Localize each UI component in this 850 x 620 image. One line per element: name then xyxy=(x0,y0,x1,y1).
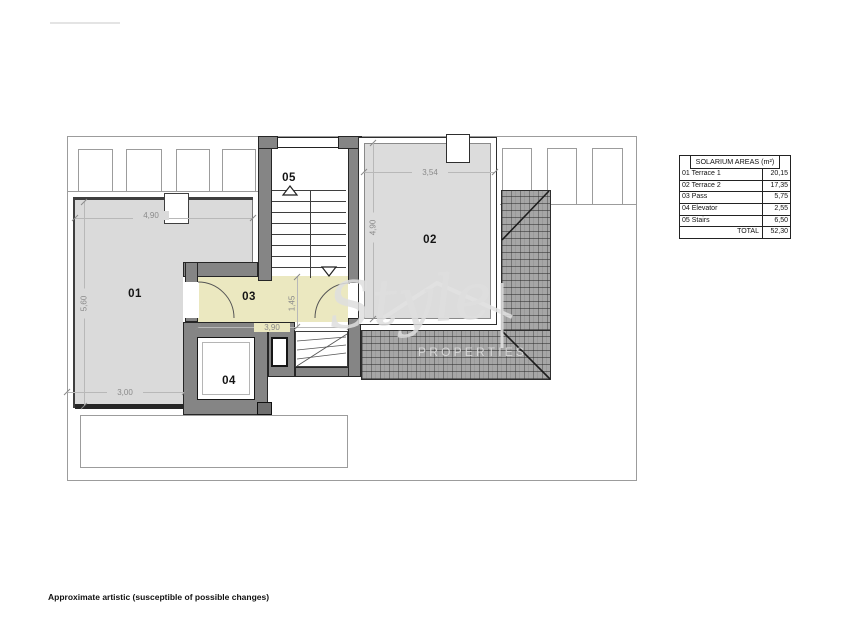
solarium-areas-table: SOLARIUM AREAS (m²) 01 Terrace 1 20,15 0… xyxy=(679,155,791,239)
terrace1-top-wall xyxy=(73,197,164,200)
pergola-beam xyxy=(126,149,162,192)
terrace1-left-wall xyxy=(73,197,75,408)
room-label-elevator: 04 xyxy=(214,375,244,387)
row-label: 02 Terrace 2 xyxy=(680,181,763,192)
faint-top-line xyxy=(50,22,120,24)
dim-line xyxy=(297,277,298,327)
dim-terrace1-depth: 5,60 xyxy=(80,289,89,319)
row-label: 03 Pass xyxy=(680,192,763,203)
row-value: 20,15 xyxy=(763,169,790,180)
service-shaft xyxy=(271,337,288,367)
dim-pass-width: 3,90 xyxy=(254,323,290,332)
stair-treads xyxy=(272,190,346,278)
pergola-beam xyxy=(78,149,113,192)
row-label: 04 Elevator xyxy=(680,204,763,215)
row-value: 6,50 xyxy=(763,216,790,227)
stairwell-left-wall xyxy=(258,148,272,281)
lower-floor-outline xyxy=(80,415,348,468)
stair-divider xyxy=(310,190,311,278)
door-opening-terrace1 xyxy=(184,282,199,318)
row-value: 17,35 xyxy=(763,181,790,192)
dim-terrace2-depth: 4,90 xyxy=(369,213,378,243)
table-row: 04 Elevator 2,55 xyxy=(680,204,790,216)
pergola-beam xyxy=(176,149,210,192)
row-label: 01 Terrace 1 xyxy=(680,169,763,180)
table-row: 03 Pass 5,75 xyxy=(680,192,790,204)
terrace1-bottom-wall xyxy=(75,404,185,409)
total-label: TOTAL xyxy=(680,227,763,238)
stairwell-corner-block xyxy=(258,136,278,149)
dim-terrace1-width: 4,90 xyxy=(133,211,169,220)
disclaimer-text: Approximate artistic (susceptible of pos… xyxy=(48,592,269,602)
pergola-beam xyxy=(592,148,623,205)
dim-pass-depth: 1,45 xyxy=(288,289,297,319)
terrace1-right-edge xyxy=(252,200,253,262)
room-label-pass: 03 xyxy=(234,291,264,303)
chimney xyxy=(446,134,470,163)
pass-floor xyxy=(198,276,350,322)
dim-terrace1-bottom: 3,00 xyxy=(107,388,143,397)
elevator-cab-inner xyxy=(202,342,250,395)
table-row: 02 Terrace 2 17,35 xyxy=(680,181,790,193)
terrace1-floor xyxy=(75,200,183,408)
corner-pillar xyxy=(257,402,272,415)
pergola-beam xyxy=(547,148,577,205)
row-value: 5,75 xyxy=(763,192,790,203)
row-label: 05 Stairs xyxy=(680,216,763,227)
dim-terrace2-width: 3,54 xyxy=(412,168,448,177)
room-label-terrace2: 02 xyxy=(415,234,445,246)
table-title: SOLARIUM AREAS (m²) xyxy=(690,156,780,169)
tiled-roof-bottom xyxy=(361,330,551,380)
row-value: 2,55 xyxy=(763,204,790,215)
table-row: 05 Stairs 6,50 xyxy=(680,216,790,228)
table-total-row: TOTAL 52,30 xyxy=(680,227,790,238)
room-label-stairs: 05 xyxy=(274,172,304,184)
table-row: 01 Terrace 1 20,15 xyxy=(680,169,790,181)
stairwell-window xyxy=(277,137,339,148)
floor-plan-page: { "plan": { "rooms": [ {"number": "01"},… xyxy=(0,0,850,620)
room-label-terrace1: 01 xyxy=(120,288,150,300)
terrace1-floor-upper xyxy=(183,200,253,262)
lower-stair-flight xyxy=(295,331,348,367)
terrace1-top-wall xyxy=(189,197,253,200)
pergola-beam xyxy=(222,149,256,192)
total-value: 52,30 xyxy=(763,227,790,238)
